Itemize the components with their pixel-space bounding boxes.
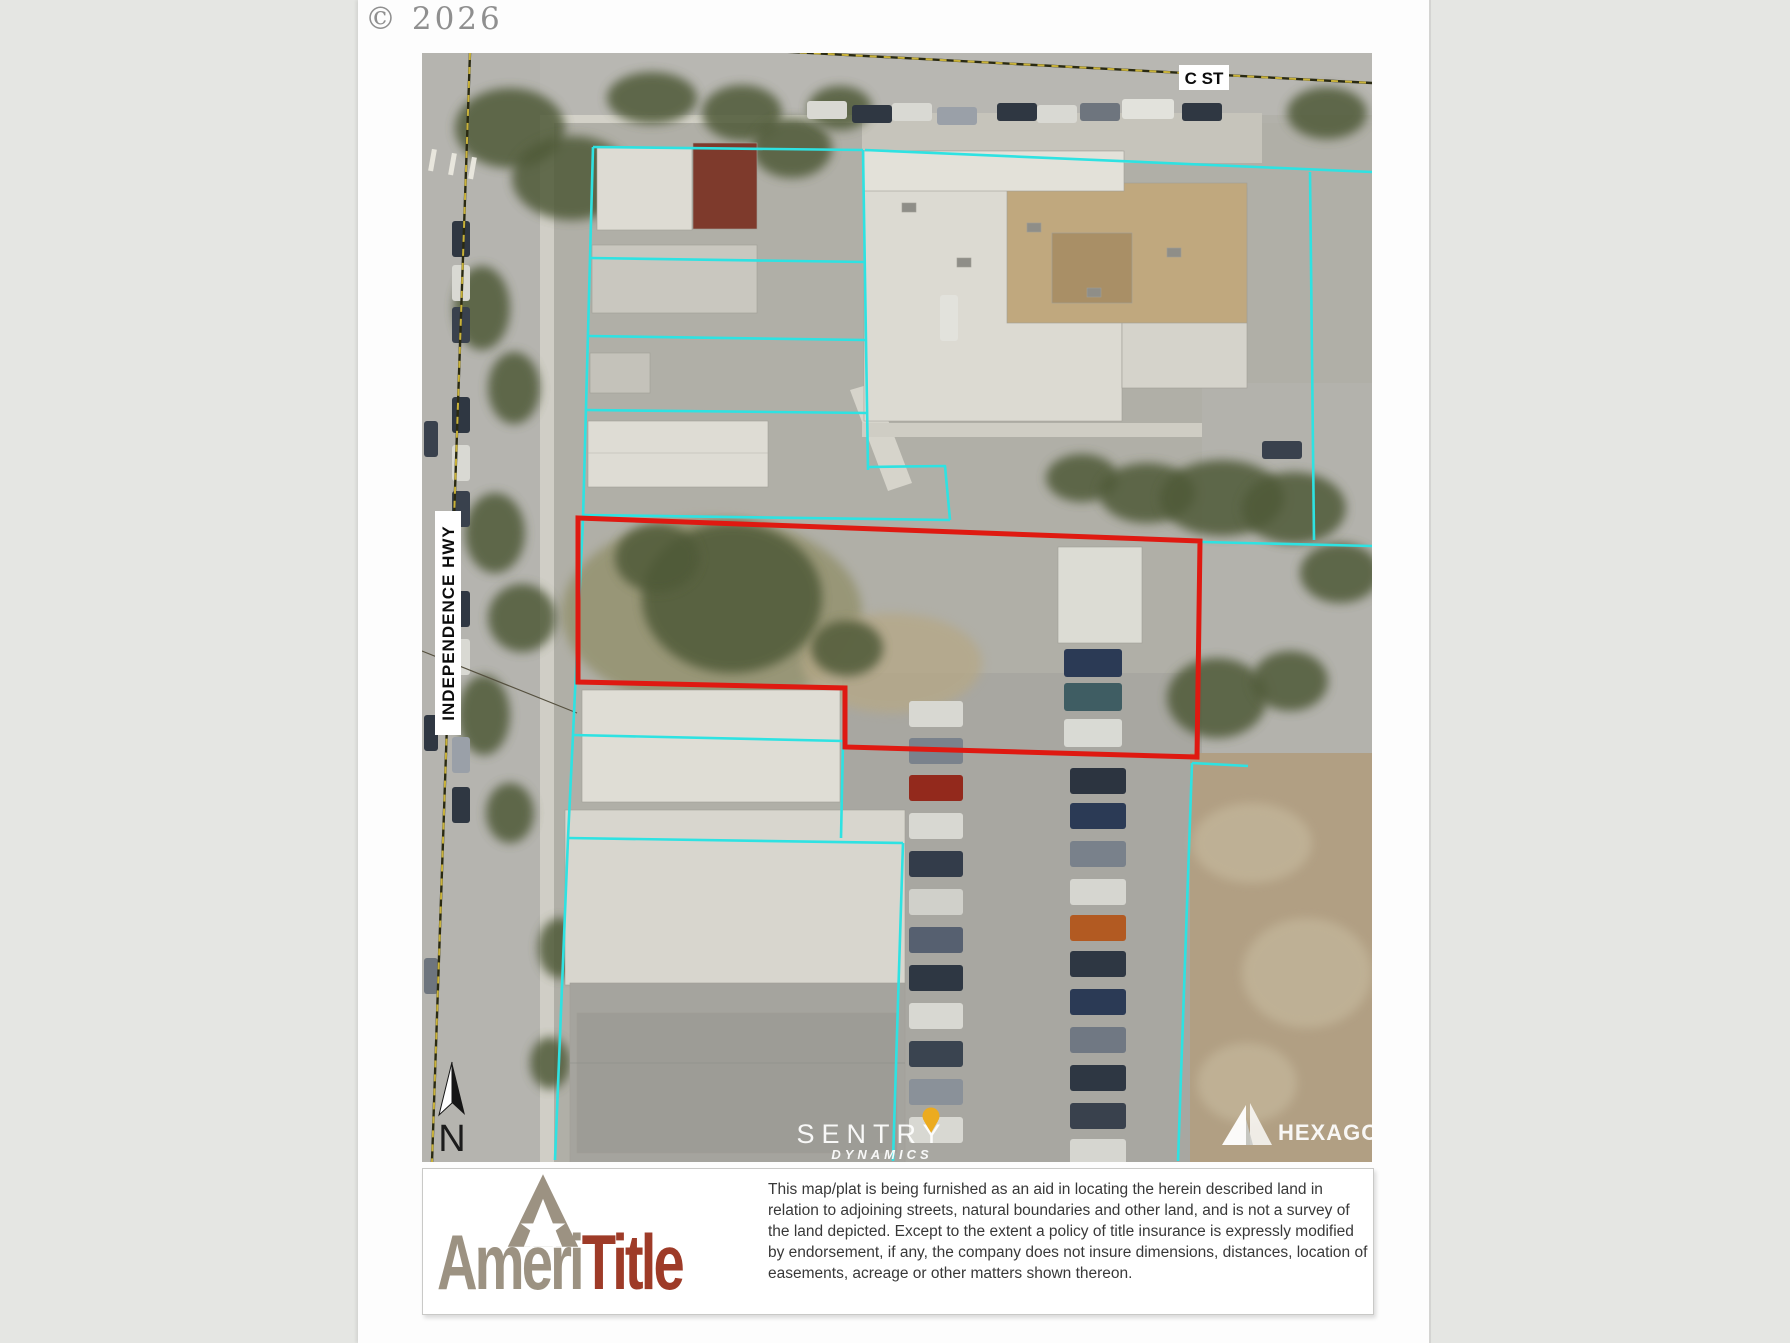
dynamics-text: DYNAMICS [831, 1147, 932, 1162]
cars-subject-parcel [1064, 649, 1122, 747]
amerititle-wordmark: AmeriTitle [437, 1223, 682, 1301]
independence-hwy-label: INDEPENDENCE HWY [435, 511, 461, 735]
c-st-label: C ST [1179, 65, 1229, 90]
c-st-label-text: C ST [1185, 69, 1224, 88]
document-page: © 2026 [358, 0, 1431, 1343]
wordmark-ameri: Ameri [437, 1218, 582, 1306]
aerial-map-canvas: C ST INDEPENDENCE HWY N SENTRY [422, 53, 1372, 1162]
wordmark-title: Title [582, 1218, 682, 1306]
disclaimer-text: This map/plat is being furnished as an a… [768, 1179, 1373, 1284]
footer-panel: AmeriTitle This map/plat is being furnis… [422, 1168, 1374, 1315]
aerial-map: C ST INDEPENDENCE HWY N SENTRY [422, 53, 1372, 1162]
north-label: N [438, 1118, 465, 1160]
independence-hwy-label-text: INDEPENDENCE HWY [439, 525, 458, 720]
sentry-text: SENTRY [796, 1119, 947, 1149]
copyright-notice: © 2026 [365, 1, 503, 37]
hexagon-text: HEXAGON [1278, 1120, 1372, 1145]
